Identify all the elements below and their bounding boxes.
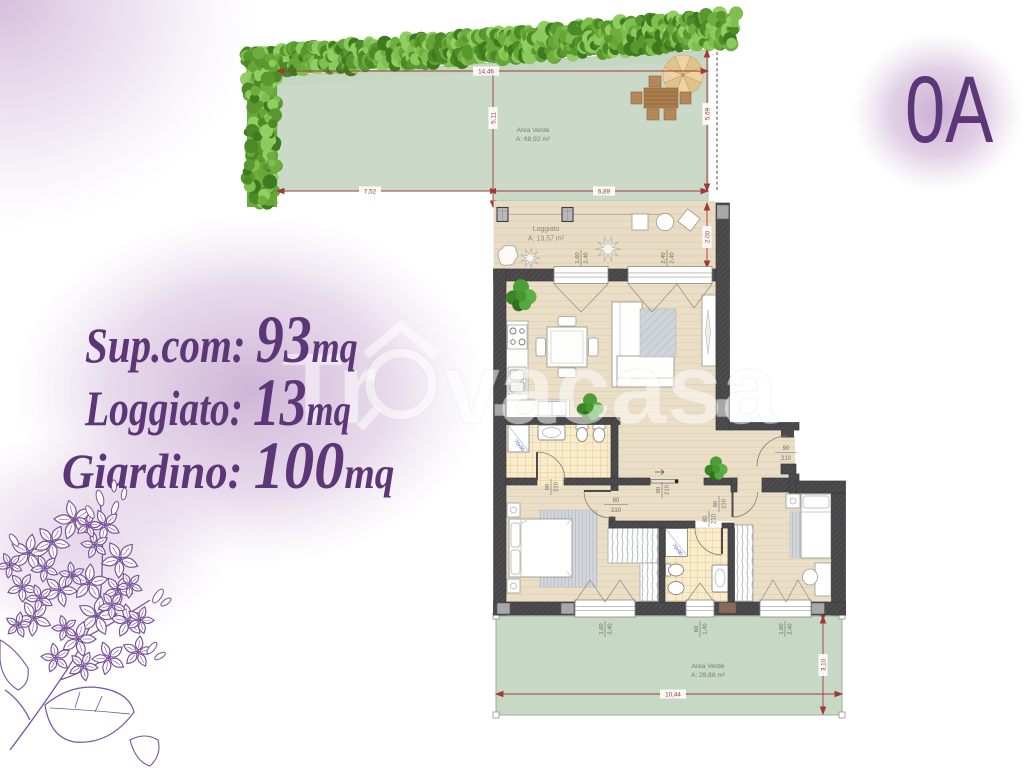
svg-text:2,40: 2,40 xyxy=(661,252,667,263)
svg-text:14,46: 14,46 xyxy=(478,68,494,75)
svg-text:5,11: 5,11 xyxy=(490,112,497,124)
svg-text:A: 29,88 m²: A: 29,88 m² xyxy=(691,672,726,679)
svg-text:80: 80 xyxy=(713,501,719,507)
svg-text:3,10: 3,10 xyxy=(820,658,827,671)
svg-text:0A: 0A xyxy=(905,56,994,162)
svg-text:1,60: 1,60 xyxy=(779,623,785,634)
svg-text:60: 60 xyxy=(694,626,700,632)
svg-text:1,60: 1,60 xyxy=(599,623,605,634)
svg-text:1,60: 1,60 xyxy=(575,252,581,263)
svg-text:80: 80 xyxy=(656,487,662,493)
svg-text:2,00: 2,00 xyxy=(704,230,711,243)
svg-text:210: 210 xyxy=(722,499,728,509)
svg-text:80: 80 xyxy=(703,515,709,522)
svg-text:210: 210 xyxy=(611,508,622,514)
svg-text:A: 68,92 m²: A: 68,92 m² xyxy=(516,136,551,143)
svg-text:2,40: 2,40 xyxy=(670,252,676,263)
svg-text:vacasa: vacasa xyxy=(444,333,779,445)
svg-text:10,44: 10,44 xyxy=(665,691,681,698)
svg-text:2,40: 2,40 xyxy=(788,623,794,634)
svg-text:Area Verde: Area Verde xyxy=(517,127,550,134)
svg-text:5,69: 5,69 xyxy=(704,107,711,120)
svg-text:80: 80 xyxy=(545,484,551,490)
svg-text:1,40: 1,40 xyxy=(703,623,709,634)
svg-text:210: 210 xyxy=(781,456,792,462)
svg-text:90: 90 xyxy=(783,446,790,452)
svg-text:210: 210 xyxy=(554,482,560,492)
svg-text:7,52: 7,52 xyxy=(364,188,377,195)
svg-text:Area Verde: Area Verde xyxy=(692,663,725,670)
svg-text:2,40: 2,40 xyxy=(584,252,590,263)
svg-text:210: 210 xyxy=(665,485,671,495)
svg-text:2,40: 2,40 xyxy=(608,623,614,634)
svg-text:6,89: 6,89 xyxy=(598,188,611,195)
svg-text:210: 210 xyxy=(712,513,718,524)
svg-text:Loggiato: Loggiato xyxy=(533,226,560,233)
svg-text:80: 80 xyxy=(613,498,620,504)
svg-text:A: 13,57 m²: A: 13,57 m² xyxy=(528,236,565,243)
